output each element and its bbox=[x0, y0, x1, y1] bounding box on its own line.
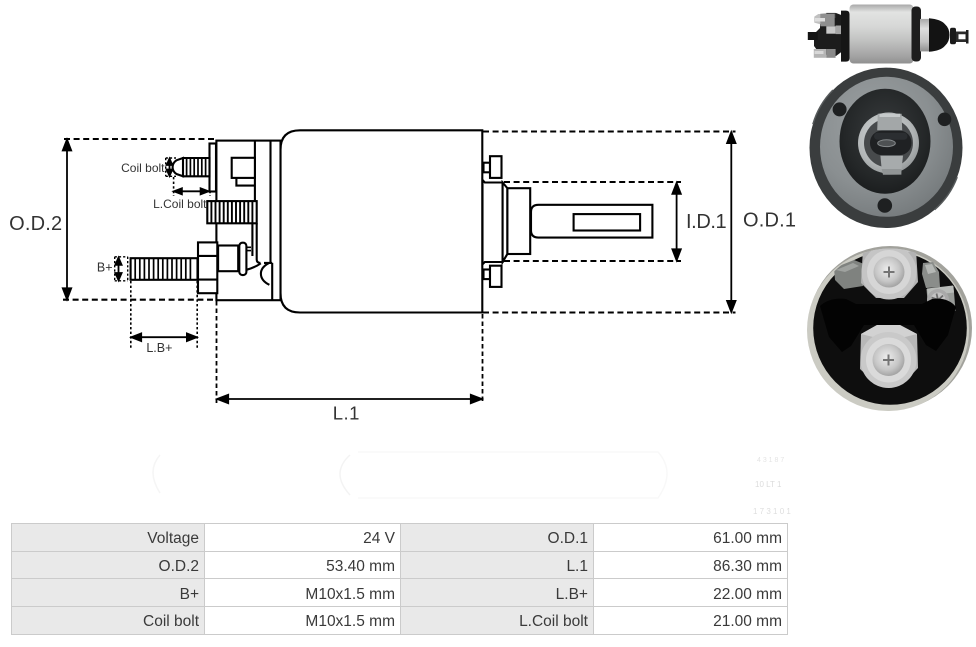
svg-text:L.Coil bolt: L.Coil bolt bbox=[153, 197, 207, 211]
svg-text:10 LT 1: 10 LT 1 bbox=[755, 480, 782, 489]
svg-text:Coil bolt: Coil bolt bbox=[121, 161, 165, 175]
svg-text:4 3 1 8 7: 4 3 1 8 7 bbox=[757, 457, 784, 464]
svg-text:L.B+: L.B+ bbox=[146, 341, 172, 355]
svg-text:1 7 3 1 0 1: 1 7 3 1 0 1 bbox=[753, 507, 791, 516]
svg-text:O.D.2: O.D.2 bbox=[9, 213, 62, 235]
svg-text:B+: B+ bbox=[97, 261, 113, 275]
svg-text:L.1: L.1 bbox=[333, 403, 360, 424]
svg-text:O.D.1: O.D.1 bbox=[743, 210, 796, 232]
svg-text:I.D.1: I.D.1 bbox=[686, 211, 727, 233]
